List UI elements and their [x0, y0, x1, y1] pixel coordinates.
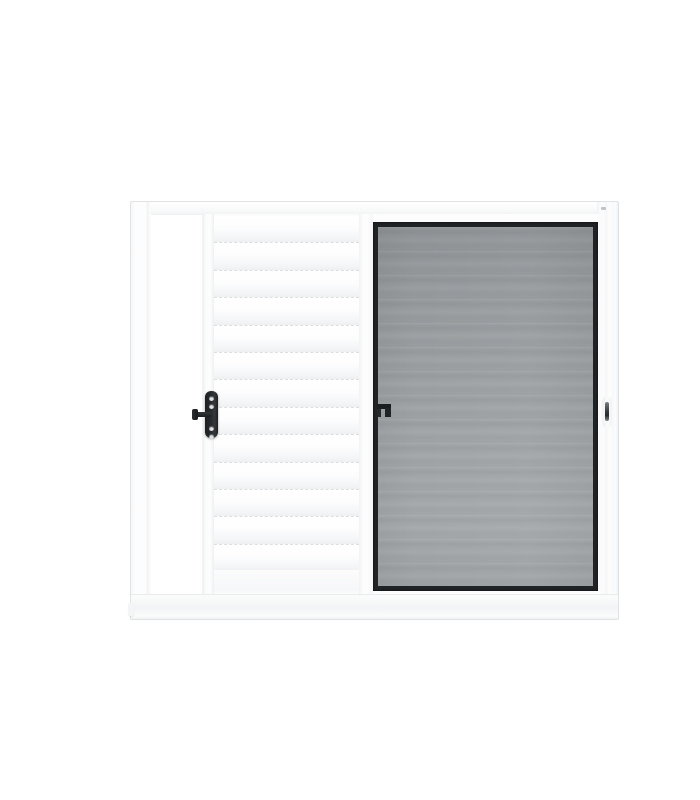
louver-slat [214, 380, 359, 407]
open-track-gap [151, 215, 203, 594]
smoked-glass-pane [378, 227, 593, 586]
louver-slat [214, 545, 359, 572]
screw-hole [209, 404, 214, 409]
louver-slat [214, 216, 359, 243]
screw-hole [209, 426, 214, 431]
louver-slat [214, 298, 359, 325]
louver-slat [214, 408, 359, 435]
louver-slat [214, 326, 359, 353]
glass-sash-left-stile [359, 214, 373, 594]
screw-hole [209, 434, 214, 439]
frame-catch [605, 402, 609, 421]
louver-slats [214, 216, 359, 572]
louver-slat [214, 463, 359, 490]
louver-slat [214, 435, 359, 462]
window-frame-left-jamb [131, 202, 151, 619]
sliding-window [130, 201, 619, 620]
glass-sash-panel [359, 214, 599, 594]
glass-latch-hook [385, 408, 391, 417]
louver-slat [214, 243, 359, 270]
louver-shutter-panel [203, 214, 359, 594]
louver-slat [214, 271, 359, 298]
frame-screw-mark [601, 207, 606, 210]
frame-corner-lip [128, 603, 134, 616]
louver-slat [214, 490, 359, 517]
glass-hook-latch [377, 404, 393, 421]
product-photo [0, 0, 700, 800]
shutter-latch-handle-tip [192, 409, 198, 420]
louver-slat [214, 517, 359, 544]
louver-slat [214, 353, 359, 380]
louver-bottom-rail [214, 570, 359, 594]
window-frame-bottom-sill [131, 594, 618, 619]
screw-hole [209, 396, 214, 401]
glass-black-frame [373, 222, 598, 591]
